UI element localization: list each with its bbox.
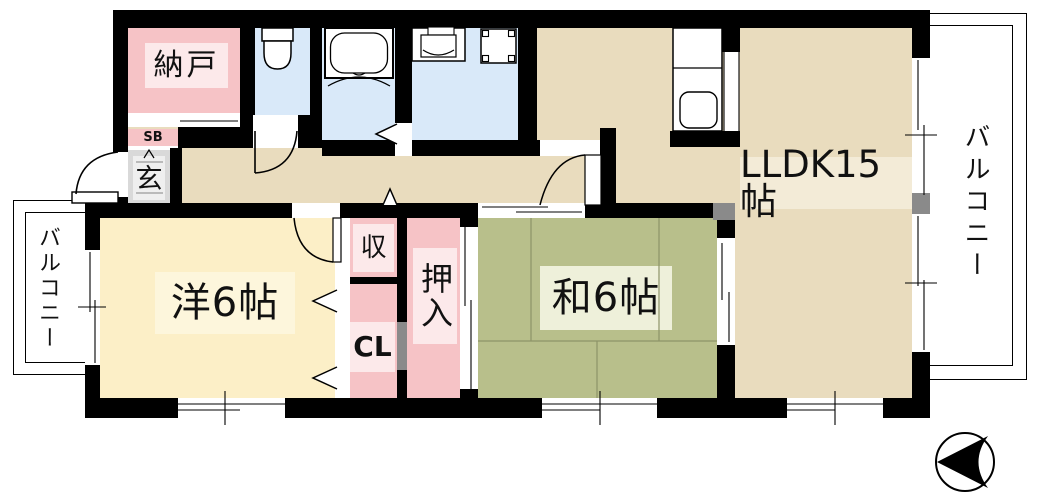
wall-kitchen-stub-bottom [670, 131, 740, 147]
wall-closet-oshiire [397, 218, 407, 398]
japanese-room-fusuma-top [478, 203, 585, 218]
entrance-doorway [113, 152, 128, 197]
window-right-lower [912, 214, 930, 352]
wall-closet-top [345, 203, 478, 218]
wall-gray-accent-cl [397, 322, 407, 370]
wall-nando-toilet [240, 10, 255, 115]
balcony-right-label: バルコニー [957, 95, 993, 310]
wall-washroom-ldk [518, 10, 537, 156]
washroom-doorway [395, 123, 412, 156]
nando-label: 納戸 [145, 43, 228, 88]
fusuma-door-strip-left [460, 218, 478, 398]
wall-strip-right-top [717, 220, 735, 238]
genkan-label: 玄 [133, 160, 165, 198]
wall-shu-cl-divider [350, 277, 397, 284]
fusuma-strip-notch-top [460, 218, 478, 227]
compass-north-icon [936, 433, 994, 491]
wall-bath-washroom [395, 10, 412, 123]
wall-japanese-top [585, 203, 713, 218]
kitchen-partition-opening [724, 52, 739, 131]
western-room-label: 洋6帖 [155, 272, 295, 334]
nando-door-opening [128, 113, 240, 127]
fusuma-strip-notch-bottom [460, 389, 478, 398]
wall-gray-corner [713, 203, 735, 220]
closet-folding-door-strip [335, 218, 350, 398]
wall-strip-right-bottom [717, 345, 735, 398]
oshiire-label: 押入 [413, 248, 457, 344]
closet-cl-label: CL [350, 322, 395, 372]
wall-kitchen-stub-top [722, 28, 740, 52]
floor-plan: バルコニー バルコニー 納戸 SB 玄 洋6帖 収 CL 押入 和6帖 LLDK… [0, 0, 1040, 503]
japanese-room-label: 和6帖 [540, 266, 672, 330]
wall-toilet-bath [310, 10, 322, 115]
western-room-doorway [292, 203, 340, 218]
wall-entrance-chunk [178, 127, 240, 148]
ldk-label: LLDK15帖 [740, 157, 912, 209]
window-right-upper [912, 58, 930, 196]
window-bottom-japanese [542, 398, 657, 418]
storage-shu-label: 収 [353, 224, 394, 272]
window-bottom-ldk [787, 398, 883, 418]
sliding-door-strip-right [717, 238, 735, 345]
bathroom [322, 28, 395, 140]
window-left [85, 250, 100, 365]
washroom [412, 28, 518, 140]
window-right-mullion [912, 193, 930, 216]
toilet-doorway [253, 115, 298, 148]
wall-genkan-right [170, 148, 182, 205]
ldk-doorway [540, 140, 600, 156]
toilet-room [255, 28, 310, 115]
entrance-door [72, 152, 118, 203]
balcony-left-label: バルコニー [30, 218, 64, 358]
window-bottom-western [178, 398, 285, 418]
shoe-box-label: SB [128, 129, 178, 146]
